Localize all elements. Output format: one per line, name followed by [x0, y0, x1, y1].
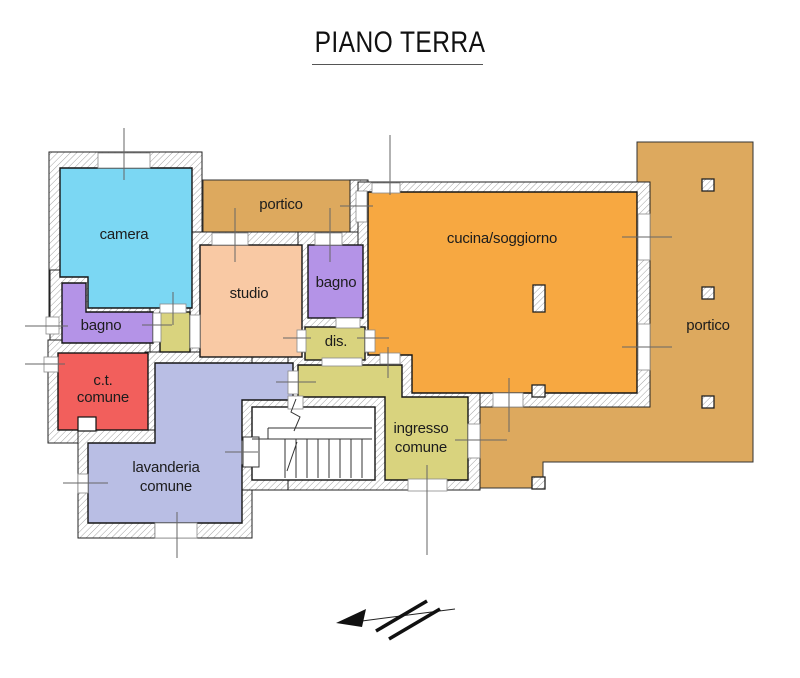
pillar — [702, 179, 714, 191]
title-underline-rule — [312, 64, 483, 65]
stairwell — [252, 407, 375, 480]
label-camera: camera — [100, 226, 150, 243]
pillar — [702, 287, 714, 299]
label-ct-line2: comune — [77, 389, 129, 406]
label-bagno-upper: bagno — [316, 274, 357, 291]
label-lavanderia-line1: lavanderia — [132, 459, 200, 476]
pillar — [702, 396, 714, 408]
pillar — [532, 477, 545, 489]
page-title: PIANO TERRA — [72, 26, 728, 60]
room-disimpegno-small — [160, 312, 190, 352]
pillar — [532, 385, 545, 397]
label-ct-line1: c.t. — [93, 372, 112, 389]
pillar — [533, 285, 545, 312]
label-ingresso-line1: ingresso — [393, 420, 448, 437]
label-ingresso-line2: comune — [395, 439, 447, 456]
label-portico-top: portico — [259, 196, 303, 213]
floor-plan-drawing: camera portico cucina/soggiorno bagno st… — [0, 0, 800, 678]
label-dis: dis. — [325, 333, 348, 350]
label-portico-right: portico — [686, 317, 730, 334]
label-bagno-lower: bagno — [81, 317, 122, 334]
label-cucina: cucina/soggiorno — [447, 230, 557, 247]
floor-plan-page: PIANO TERRA — [0, 0, 800, 678]
label-studio: studio — [230, 285, 269, 302]
label-lavanderia-line2: comune — [140, 478, 192, 495]
north-arrow-icon — [336, 601, 455, 639]
ct-niche — [78, 417, 96, 431]
